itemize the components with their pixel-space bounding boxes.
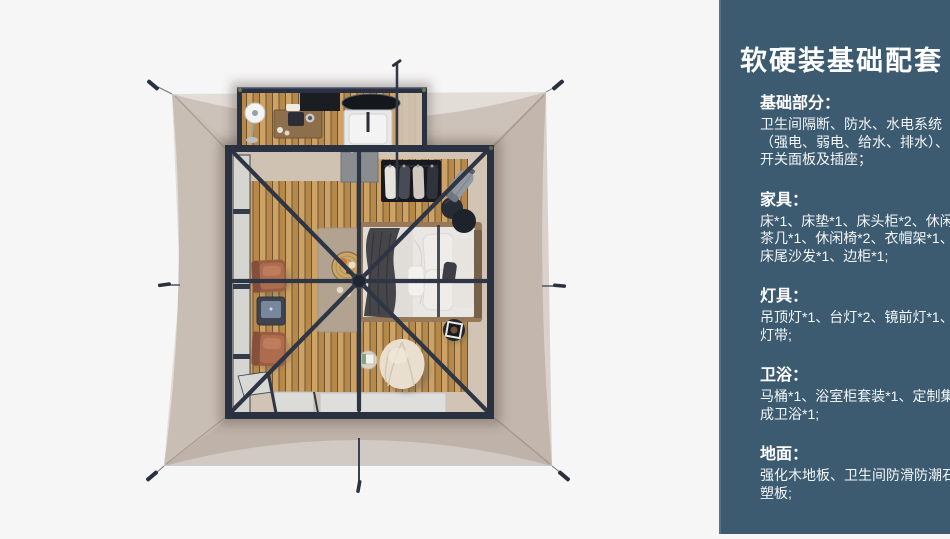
section-lighting: 灯具： 吊顶灯*1、台灯*2、镜前灯*1、 灯带;: [760, 287, 950, 344]
bathroom-sink: [344, 110, 392, 148]
section-basics-body: 卫生间隔断、防水、水电系统 （强电、弱电、给水、排水）、 开关面板及插座；: [760, 116, 950, 169]
section-furniture-body: 床*1、床垫*1、床头柜*2、休闲 茶几*1、休闲椅*2、衣帽架*1、 床尾沙发…: [760, 213, 950, 266]
center-pole-hub: [352, 274, 366, 288]
coffee-machine: [288, 112, 304, 126]
section-furniture-heading: 家具：: [760, 191, 950, 210]
section-flooring-heading: 地面：: [760, 445, 950, 464]
bathroom-vanity-desk: [274, 110, 322, 138]
section-flooring-body: 强化木地板、卫生间防滑防潮石 塑板;: [760, 467, 950, 502]
armchair-top: [251, 259, 287, 293]
bathroom: [237, 88, 427, 150]
bed-runner: [437, 225, 440, 317]
section-basics-heading: 基础部分：: [760, 94, 950, 113]
bathroom-mirror: [342, 94, 400, 112]
section-bathroom-heading: 卫浴：: [760, 366, 950, 385]
clothes-rack: [381, 160, 441, 202]
section-lighting-body: 吊顶灯*1、台灯*2、镜前灯*1、 灯带;: [760, 309, 950, 344]
tent-illustration: [0, 0, 719, 534]
headboard: [474, 230, 482, 318]
section-bathroom: 卫浴： 马桶*1、浴室柜套装*1、定制集 成卫浴*1;: [760, 366, 950, 423]
info-sidebar: 软硬装基础配套 基础部分： 卫生间隔断、防水、水电系统 （强电、弱电、给水、排水…: [719, 0, 950, 534]
section-furniture: 家具： 床*1、床垫*1、床头柜*2、休闲 茶几*1、休闲椅*2、衣帽架*1、 …: [760, 191, 950, 266]
tent-topview-svg: [0, 0, 719, 534]
sidebar-title: 软硬装基础配套: [740, 46, 950, 76]
section-lighting-heading: 灯具：: [760, 287, 950, 306]
section-basics: 基础部分： 卫生间隔断、防水、水电系统 （强电、弱电、给水、排水）、 开关面板及…: [760, 94, 950, 169]
section-flooring: 地面： 强化木地板、卫生间防滑防潮石 塑板;: [760, 445, 950, 502]
bathroom-counter: [300, 93, 340, 111]
section-bathroom-body: 马桶*1、浴室柜套装*1、定制集 成卫浴*1;: [760, 388, 950, 423]
bed: [360, 222, 482, 322]
book-table: [359, 351, 377, 369]
side-table: [257, 297, 285, 325]
